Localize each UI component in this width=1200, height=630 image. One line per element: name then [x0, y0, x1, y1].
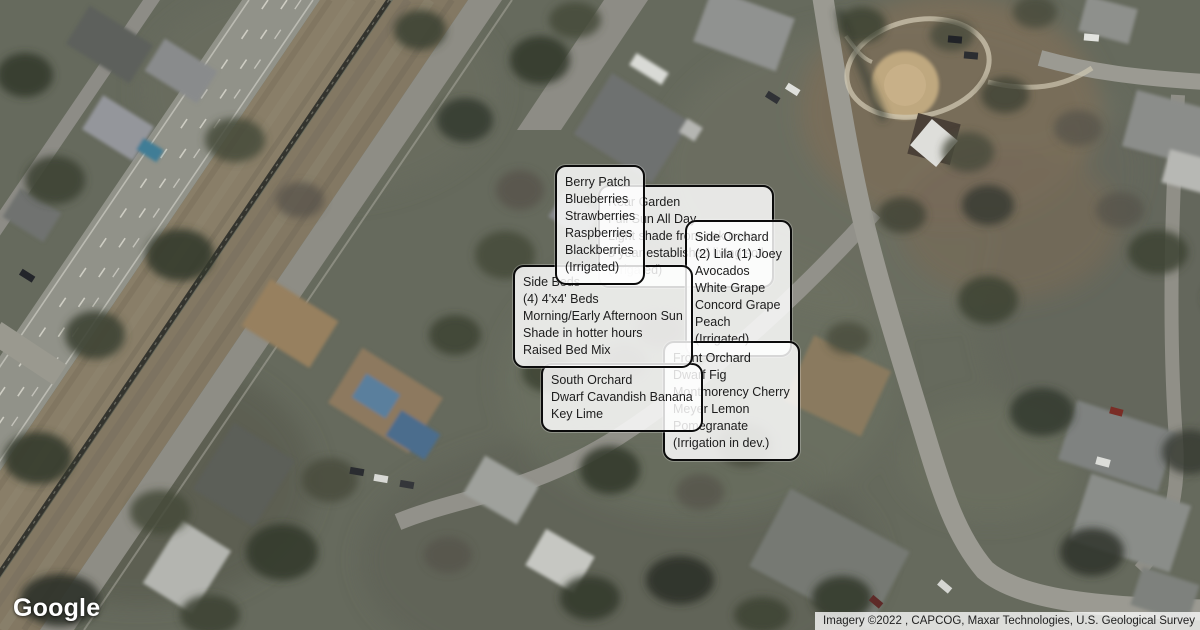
label-line: (Irrigated) [565, 259, 635, 276]
label-line: Key Lime [551, 406, 693, 423]
label-line: Berry Patch [565, 174, 635, 191]
label-south-orchard[interactable]: South Orchard Dwarf Cavandish Banana Key… [541, 363, 703, 432]
label-line: Raised Bed Mix [523, 342, 683, 359]
car [948, 35, 963, 43]
car [964, 51, 979, 59]
label-line: Raspberries [565, 225, 635, 242]
imagery-attribution: Imagery ©2022 , CAPCOG, Maxar Technologi… [815, 612, 1200, 630]
label-line: (Irrigation in dev.) [673, 435, 790, 452]
google-logo[interactable]: Google [13, 594, 100, 623]
label-line: Concord Grape [695, 297, 782, 314]
label-berry-patch[interactable]: Berry Patch Blueberries Strawberries Ras… [555, 165, 645, 285]
label-line: Peach [695, 314, 782, 331]
label-line: (2) Lila (1) Joey [695, 246, 782, 263]
label-line: Side Orchard [695, 229, 782, 246]
label-line: Blueberries [565, 191, 635, 208]
label-line: White Grape [695, 280, 782, 297]
label-line: Shade in hotter hours [523, 325, 683, 342]
map-viewport: Rear Garden Full Sun All Day Light shade… [0, 0, 1200, 630]
label-line: Blackberries [565, 242, 635, 259]
label-line: Dwarf Cavandish Banana [551, 389, 693, 406]
label-side-orchard[interactable]: Side Orchard (2) Lila (1) Joey Avocados … [685, 220, 792, 357]
label-line: (4) 4'x4' Beds [523, 291, 683, 308]
label-line: Morning/Early Afternoon Sun [523, 308, 683, 325]
label-line: Avocados [695, 263, 782, 280]
label-line: Strawberries [565, 208, 635, 225]
label-line: South Orchard [551, 372, 693, 389]
car [1084, 33, 1100, 41]
